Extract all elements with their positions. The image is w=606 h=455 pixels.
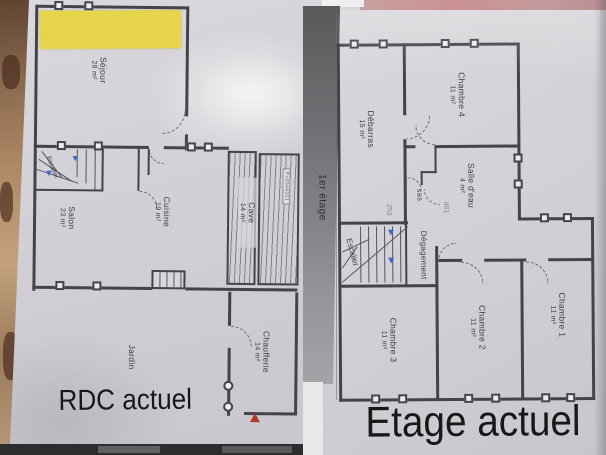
floor-edge-label: 1er étage — [317, 168, 328, 228]
wall — [403, 43, 407, 115]
stair-tread — [376, 226, 377, 282]
window-symbol — [470, 39, 479, 48]
wall — [421, 171, 437, 173]
wall — [518, 217, 594, 221]
room-label-chambre3: Chambre 3 11 m² — [379, 305, 399, 375]
window-symbol — [514, 179, 523, 188]
room-label-chambre2: Chambre 2 11 m² — [468, 292, 488, 362]
stair-direction-arrow: ▼ — [386, 228, 396, 238]
wall — [548, 258, 594, 261]
door-arc — [461, 262, 483, 284]
pencil-dimension: 253 — [385, 204, 392, 216]
window-symbol — [540, 213, 549, 222]
room-label-degagement: Dégagement — [418, 215, 429, 295]
wall — [434, 145, 436, 173]
door-arc — [415, 125, 435, 145]
stair-tread — [360, 227, 361, 283]
wall — [520, 261, 524, 397]
photo-of-floor-plans: Escalier ▼ ▼ Séjour 28 m² Salon 23 m² Cu… — [0, 0, 606, 455]
wall — [591, 217, 595, 400]
wall — [338, 221, 408, 224]
etage-title: Etage actuel — [365, 397, 580, 448]
window-symbol — [513, 153, 522, 162]
window-symbol — [563, 213, 572, 222]
stair-tread — [368, 227, 369, 283]
door-arc — [438, 243, 456, 261]
room-label-debarras: Débarras 15 m² — [356, 94, 376, 164]
pencil-dimension: 461 — [442, 202, 449, 214]
wall — [337, 42, 520, 46]
door-arc — [424, 189, 440, 205]
wall — [403, 145, 415, 148]
wall — [517, 42, 521, 220]
stair-tread — [400, 226, 401, 282]
room-label-sas: sas — [415, 180, 425, 210]
window-symbol — [379, 39, 388, 48]
etage-plan: Escalier ▼ ▼ Chambre 4 11 m² Débarras 15… — [0, 0, 606, 455]
wall — [403, 139, 407, 225]
window-symbol — [350, 40, 359, 49]
window-symbol — [441, 39, 450, 48]
stair-direction-arrow: ▼ — [386, 256, 396, 266]
room-label-chambre1: Chambre 1 11 m² — [548, 280, 568, 350]
door-arc — [526, 261, 548, 283]
wall — [405, 221, 407, 285]
wall — [435, 246, 439, 400]
room-label-salle-eau: Salle d'eau 4 m² — [457, 150, 477, 220]
wall — [435, 144, 519, 148]
room-label-chambre4: Chambre 4 11 m² — [447, 60, 467, 130]
